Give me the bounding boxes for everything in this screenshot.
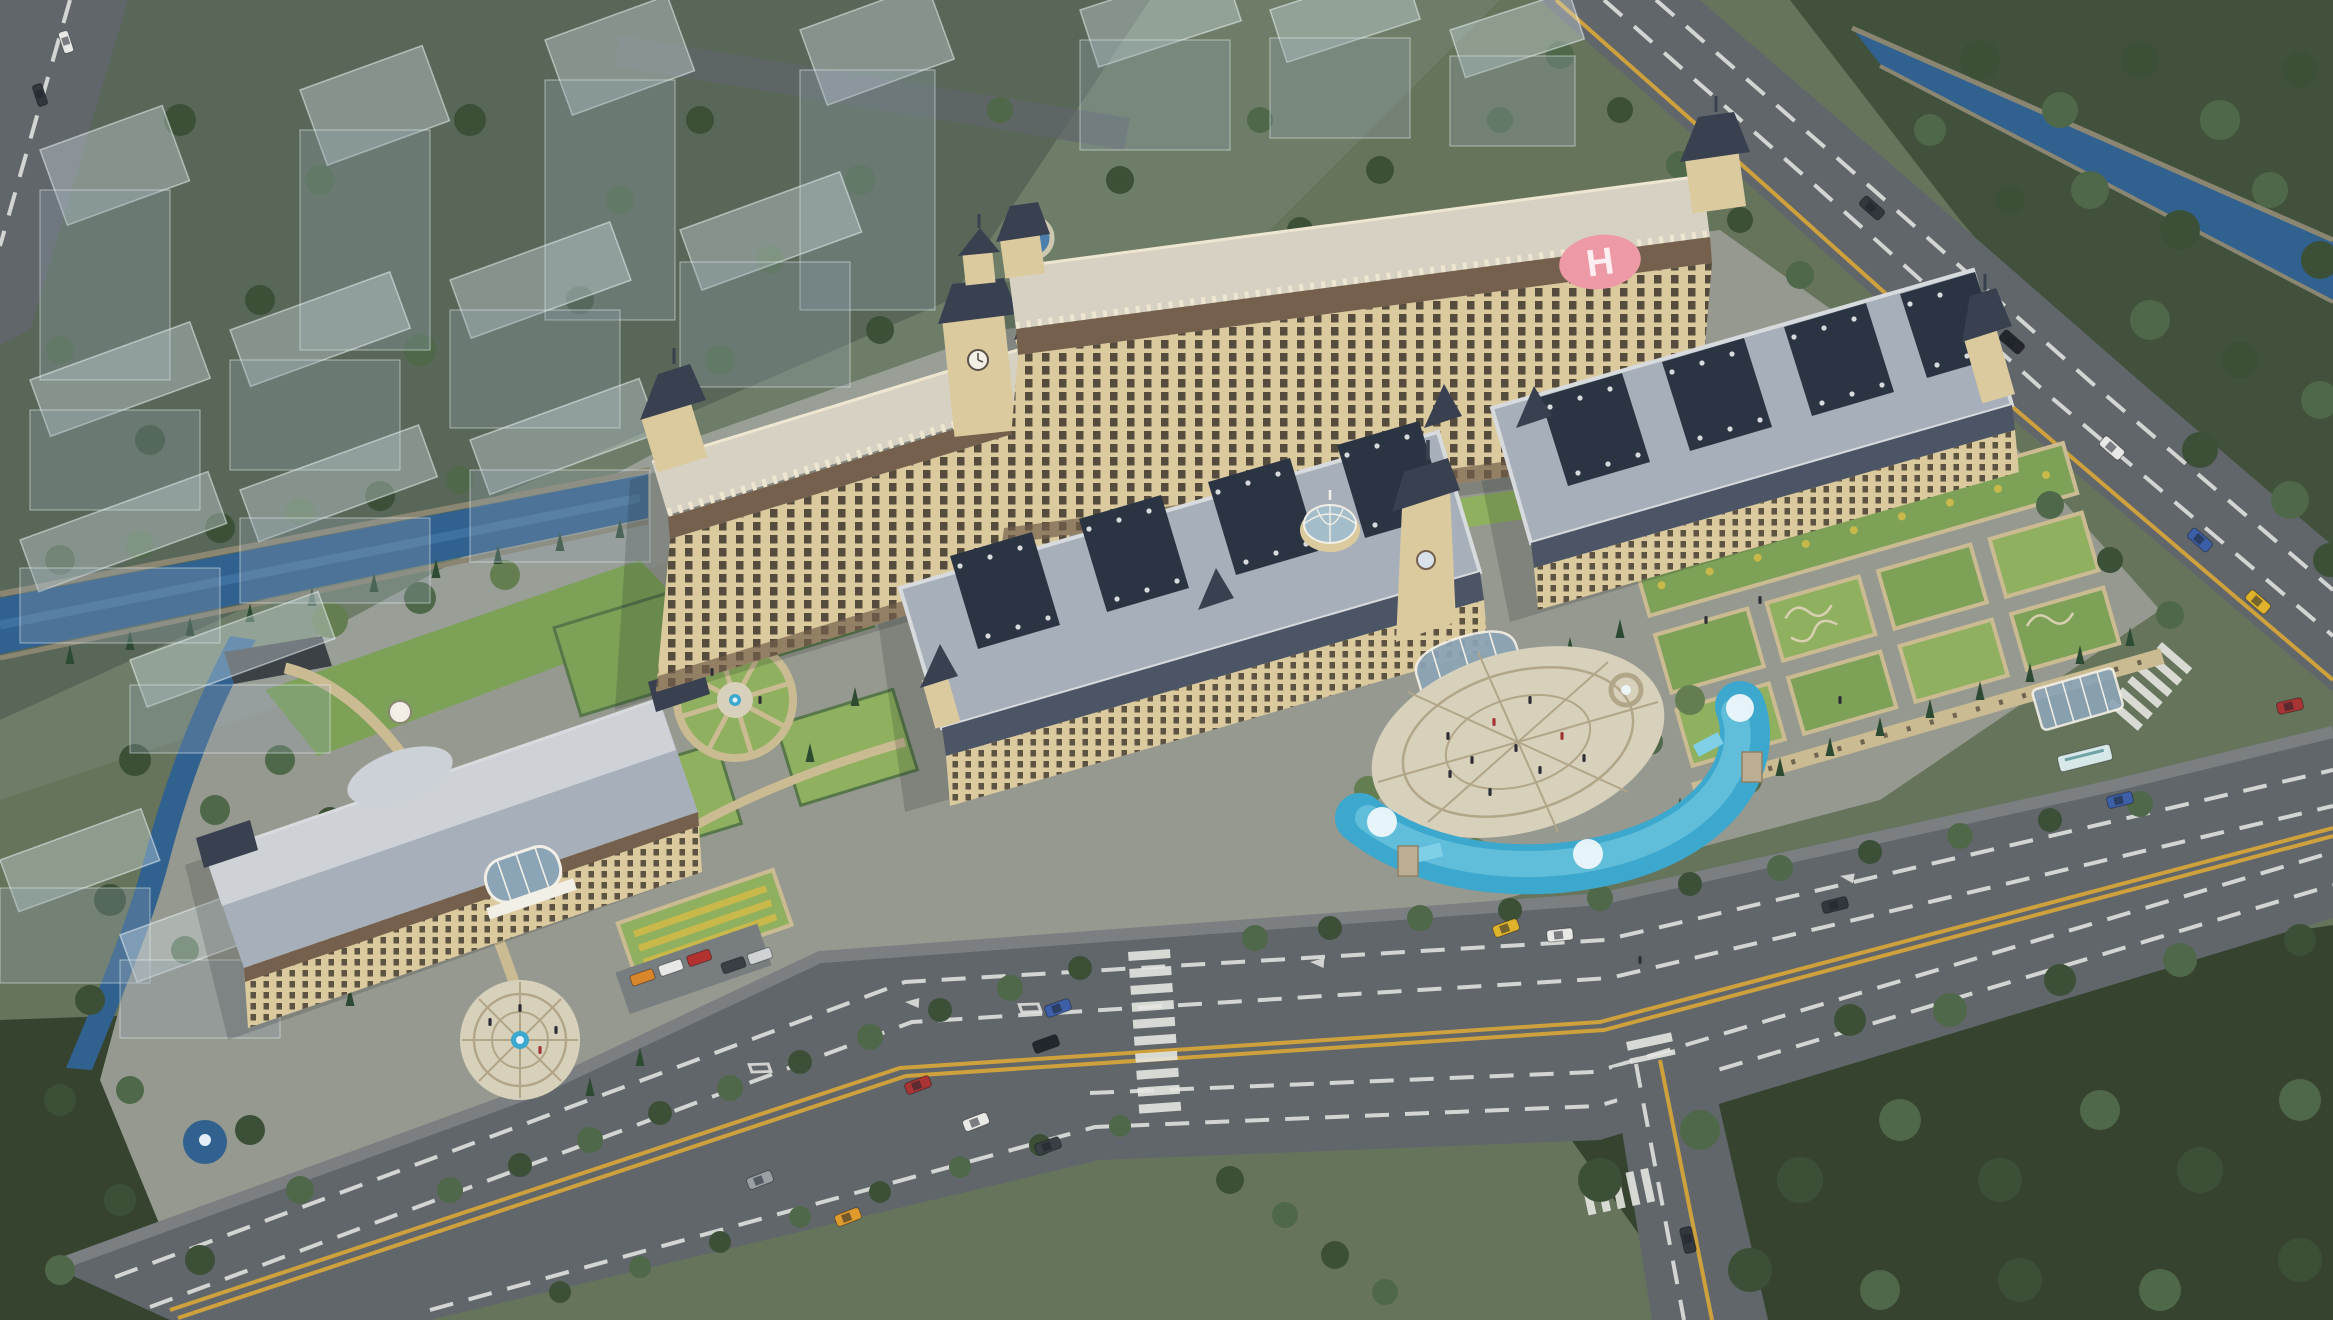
rose-window xyxy=(1417,551,1435,569)
helipad-letter: H xyxy=(1584,240,1617,285)
pool-fountain xyxy=(1573,839,1603,869)
car xyxy=(1546,928,1573,943)
garden-gazebo xyxy=(389,701,411,723)
scene-canvas: H xyxy=(0,0,2333,1320)
aerial-rendering: H xyxy=(0,0,2333,1320)
pool-fountain xyxy=(1367,807,1397,837)
annex-plaza xyxy=(460,980,580,1100)
pool-fountain xyxy=(1726,694,1754,722)
